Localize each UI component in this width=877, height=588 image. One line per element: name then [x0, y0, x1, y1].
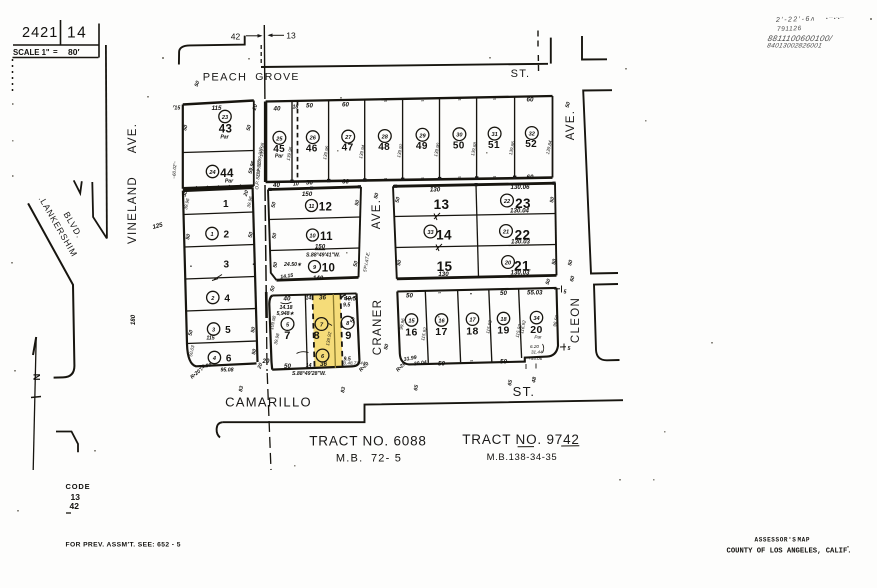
svg-text:• ˉˉ •ˉ•ˉˉ: • ˉˉ •ˉ•ˉˉ	[826, 16, 844, 21]
svg-text:•: •	[470, 291, 472, 297]
svg-text:50: 50	[284, 363, 291, 370]
svg-text:9.5: 9.5	[343, 303, 350, 309]
svg-text:130: 130	[438, 271, 449, 278]
svg-text:14: 14	[306, 296, 312, 302]
svg-text:1: 1	[223, 199, 229, 210]
svg-text:14.18: 14.18	[280, 305, 293, 311]
svg-text:60: 60	[342, 102, 349, 109]
svg-text:27: 27	[344, 135, 352, 141]
svg-text:5: 5	[225, 325, 231, 336]
svg-text:SCALE 1": SCALE 1"	[13, 48, 50, 57]
svg-text:130.03: 130.03	[511, 270, 530, 277]
svg-text:42: 42	[231, 32, 241, 42]
svg-text:AVE.: AVE.	[371, 199, 383, 230]
svg-text:60: 60	[527, 174, 534, 181]
svg-text:50: 50	[406, 293, 413, 300]
svg-text:84013002826001: 84013002826001	[766, 43, 822, 50]
svg-text:2421: 2421	[22, 25, 58, 41]
svg-text:115: 115	[206, 336, 214, 342]
svg-text:10: 10	[293, 182, 299, 188]
svg-text:9: 9	[345, 330, 352, 342]
svg-text:2: 2	[224, 230, 230, 241]
svg-text:7: 7	[284, 330, 291, 342]
svg-text:34: 34	[533, 316, 540, 322]
svg-text:46: 46	[306, 143, 318, 154]
svg-text:3: 3	[224, 260, 230, 271]
svg-text:36: 36	[320, 361, 327, 368]
svg-text:51: 51	[488, 140, 500, 151]
svg-text:791126: 791126	[777, 25, 802, 33]
svg-text:ASSESSOR′S MAP: ASSESSOR′S MAP	[755, 537, 811, 544]
svg-text:50: 50	[438, 361, 445, 368]
svg-text:CRANER: CRANER	[372, 299, 384, 355]
svg-text:95.08: 95.08	[221, 368, 234, 374]
svg-text:11: 11	[309, 204, 315, 210]
svg-text:5: 5	[568, 346, 571, 352]
svg-text:20: 20	[262, 358, 270, 365]
svg-text:17: 17	[469, 318, 476, 324]
svg-text:21: 21	[502, 230, 509, 236]
svg-text:S.88°49′28″W.: S.88°49′28″W.	[292, 371, 326, 377]
svg-text:AVE.: AVE.	[565, 110, 577, 141]
svg-text:80′: 80′	[68, 47, 80, 57]
svg-text:•: •	[253, 262, 255, 268]
svg-text:49: 49	[416, 141, 428, 152]
svg-text:FOR PREV. ASSM′T. SEE: 652 - 5: FOR PREV. ASSM′T. SEE: 652 - 5	[66, 542, 181, 549]
svg-text:ST.: ST.	[511, 68, 531, 80]
svg-text:CAMARILLO: CAMARILLO	[225, 395, 312, 410]
svg-text:4: 4	[224, 294, 230, 305]
svg-text:130: 130	[430, 187, 441, 194]
svg-text:180: 180	[130, 314, 137, 325]
svg-text:24.50∗: 24.50∗	[283, 262, 302, 268]
svg-text:10: 10	[322, 263, 336, 275]
svg-text:130.04: 130.04	[510, 208, 529, 215]
svg-text:16: 16	[405, 327, 417, 339]
svg-text:8: 8	[314, 330, 321, 342]
svg-text:115: 115	[212, 105, 222, 112]
svg-text:16: 16	[438, 319, 445, 325]
svg-text:26: 26	[309, 136, 317, 142]
svg-text:140: 140	[313, 275, 324, 282]
svg-text:Par: Par	[534, 335, 542, 340]
svg-text:M.B. 72- 5: M.B. 72- 5	[336, 453, 402, 465]
svg-text:18: 18	[293, 105, 299, 111]
svg-text:36: 36	[319, 294, 326, 301]
svg-text:5,948∗: 5,948∗	[277, 311, 295, 317]
svg-text:2′-22′-6ʌ: 2′-22′-6ʌ	[775, 16, 816, 24]
svg-text:60: 60	[527, 96, 534, 103]
svg-text:130.06: 130.06	[511, 184, 530, 191]
svg-text:18: 18	[466, 325, 478, 337]
svg-text:11: 11	[320, 231, 333, 243]
svg-text:48: 48	[378, 142, 390, 153]
svg-text:+55.06: +55.06	[528, 356, 543, 361]
svg-text:25: 25	[275, 136, 283, 142]
svg-text:40: 40	[283, 296, 291, 303]
svg-text:ST.: ST.	[513, 384, 536, 399]
svg-text:22: 22	[503, 199, 511, 205]
svg-text:COUNTY OF LOS ANGELES, CALIF.: COUNTY OF LOS ANGELES, CALIF.	[727, 548, 852, 556]
svg-text:31: 31	[491, 132, 497, 138]
svg-text:15: 15	[408, 319, 415, 325]
svg-text:130.03: 130.03	[511, 239, 530, 246]
svg-text:150: 150	[302, 191, 313, 198]
svg-text:30: 30	[456, 133, 463, 139]
svg-text:24: 24	[208, 170, 216, 176]
svg-text:AVE.: AVE.	[127, 123, 139, 154]
svg-text:6.20: 6.20	[530, 344, 539, 349]
svg-text:50: 50	[306, 103, 313, 110]
svg-text:29: 29	[418, 133, 426, 139]
svg-text:10: 10	[309, 234, 316, 240]
svg-text:=: =	[53, 48, 58, 57]
svg-text:20: 20	[504, 261, 512, 267]
svg-text:50: 50	[453, 141, 465, 152]
svg-text:42: 42	[70, 501, 80, 511]
svg-text:Par: Par	[275, 154, 284, 160]
svg-text:13: 13	[434, 197, 450, 212]
svg-text:TRACT NO. 6088: TRACT NO. 6088	[309, 434, 427, 449]
svg-text:150: 150	[315, 244, 326, 251]
svg-text:32: 32	[529, 132, 536, 138]
svg-text:6: 6	[226, 354, 232, 365]
svg-text:CODE: CODE	[66, 482, 91, 491]
svg-text:28: 28	[381, 135, 389, 141]
svg-text:−60.02′−: −60.02′−	[172, 161, 178, 179]
svg-text:17: 17	[435, 326, 447, 338]
svg-text:14: 14	[436, 228, 452, 243]
svg-text:50: 50	[500, 358, 507, 365]
svg-text:12: 12	[319, 202, 333, 214]
svg-text:40: 40	[273, 106, 281, 113]
svg-text:5: 5	[564, 290, 567, 296]
svg-text:18: 18	[500, 317, 507, 323]
svg-text:47: 47	[342, 143, 354, 154]
svg-text:14: 14	[67, 25, 87, 42]
svg-text:60: 60	[342, 179, 349, 186]
svg-text:1: 1	[210, 232, 213, 238]
svg-text:S.88°49′41″W.: S.88°49′41″W.	[306, 253, 340, 259]
svg-text:50: 50	[306, 180, 313, 187]
svg-text:GROVE: GROVE	[255, 71, 299, 83]
svg-text:⌜15: ⌜15	[172, 105, 180, 112]
svg-text:VINELAND: VINELAND	[127, 176, 139, 244]
svg-text:N: N	[32, 374, 43, 381]
svg-text:19: 19	[497, 325, 509, 337]
svg-text:50: 50	[500, 290, 507, 297]
svg-text:31.44: 31.44	[531, 350, 543, 355]
svg-text:Par: Par	[225, 179, 234, 185]
svg-text:23: 23	[221, 115, 229, 121]
svg-text:55.03: 55.03	[527, 289, 543, 296]
svg-text:M.B.138-34-35: M.B.138-34-35	[487, 452, 558, 463]
svg-text:13: 13	[286, 31, 296, 41]
svg-text:33: 33	[427, 230, 434, 236]
svg-text:Par: Par	[220, 135, 229, 141]
svg-text:14: 14	[306, 363, 312, 369]
svg-text:PEACH: PEACH	[203, 72, 247, 84]
svg-text:TRACT NO. 9742: TRACT NO. 9742	[462, 432, 580, 447]
svg-text:•: •	[190, 264, 192, 270]
svg-text:CLEON: CLEON	[570, 297, 582, 343]
svg-text:52: 52	[525, 139, 537, 150]
